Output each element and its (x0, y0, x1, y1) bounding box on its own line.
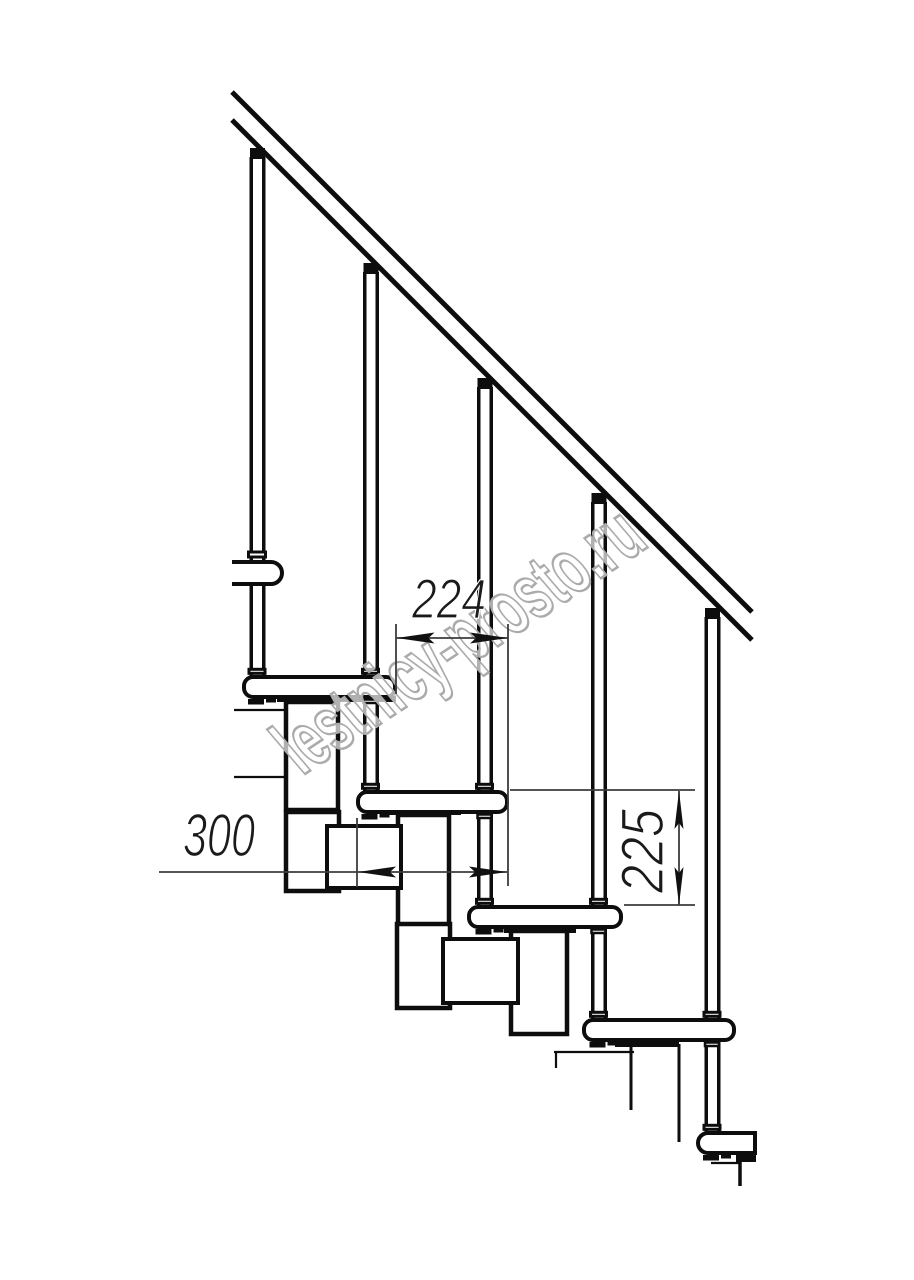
svg-text:225: 225 (609, 808, 676, 893)
svg-text:224: 224 (411, 567, 486, 630)
svg-text:300: 300 (183, 802, 255, 869)
